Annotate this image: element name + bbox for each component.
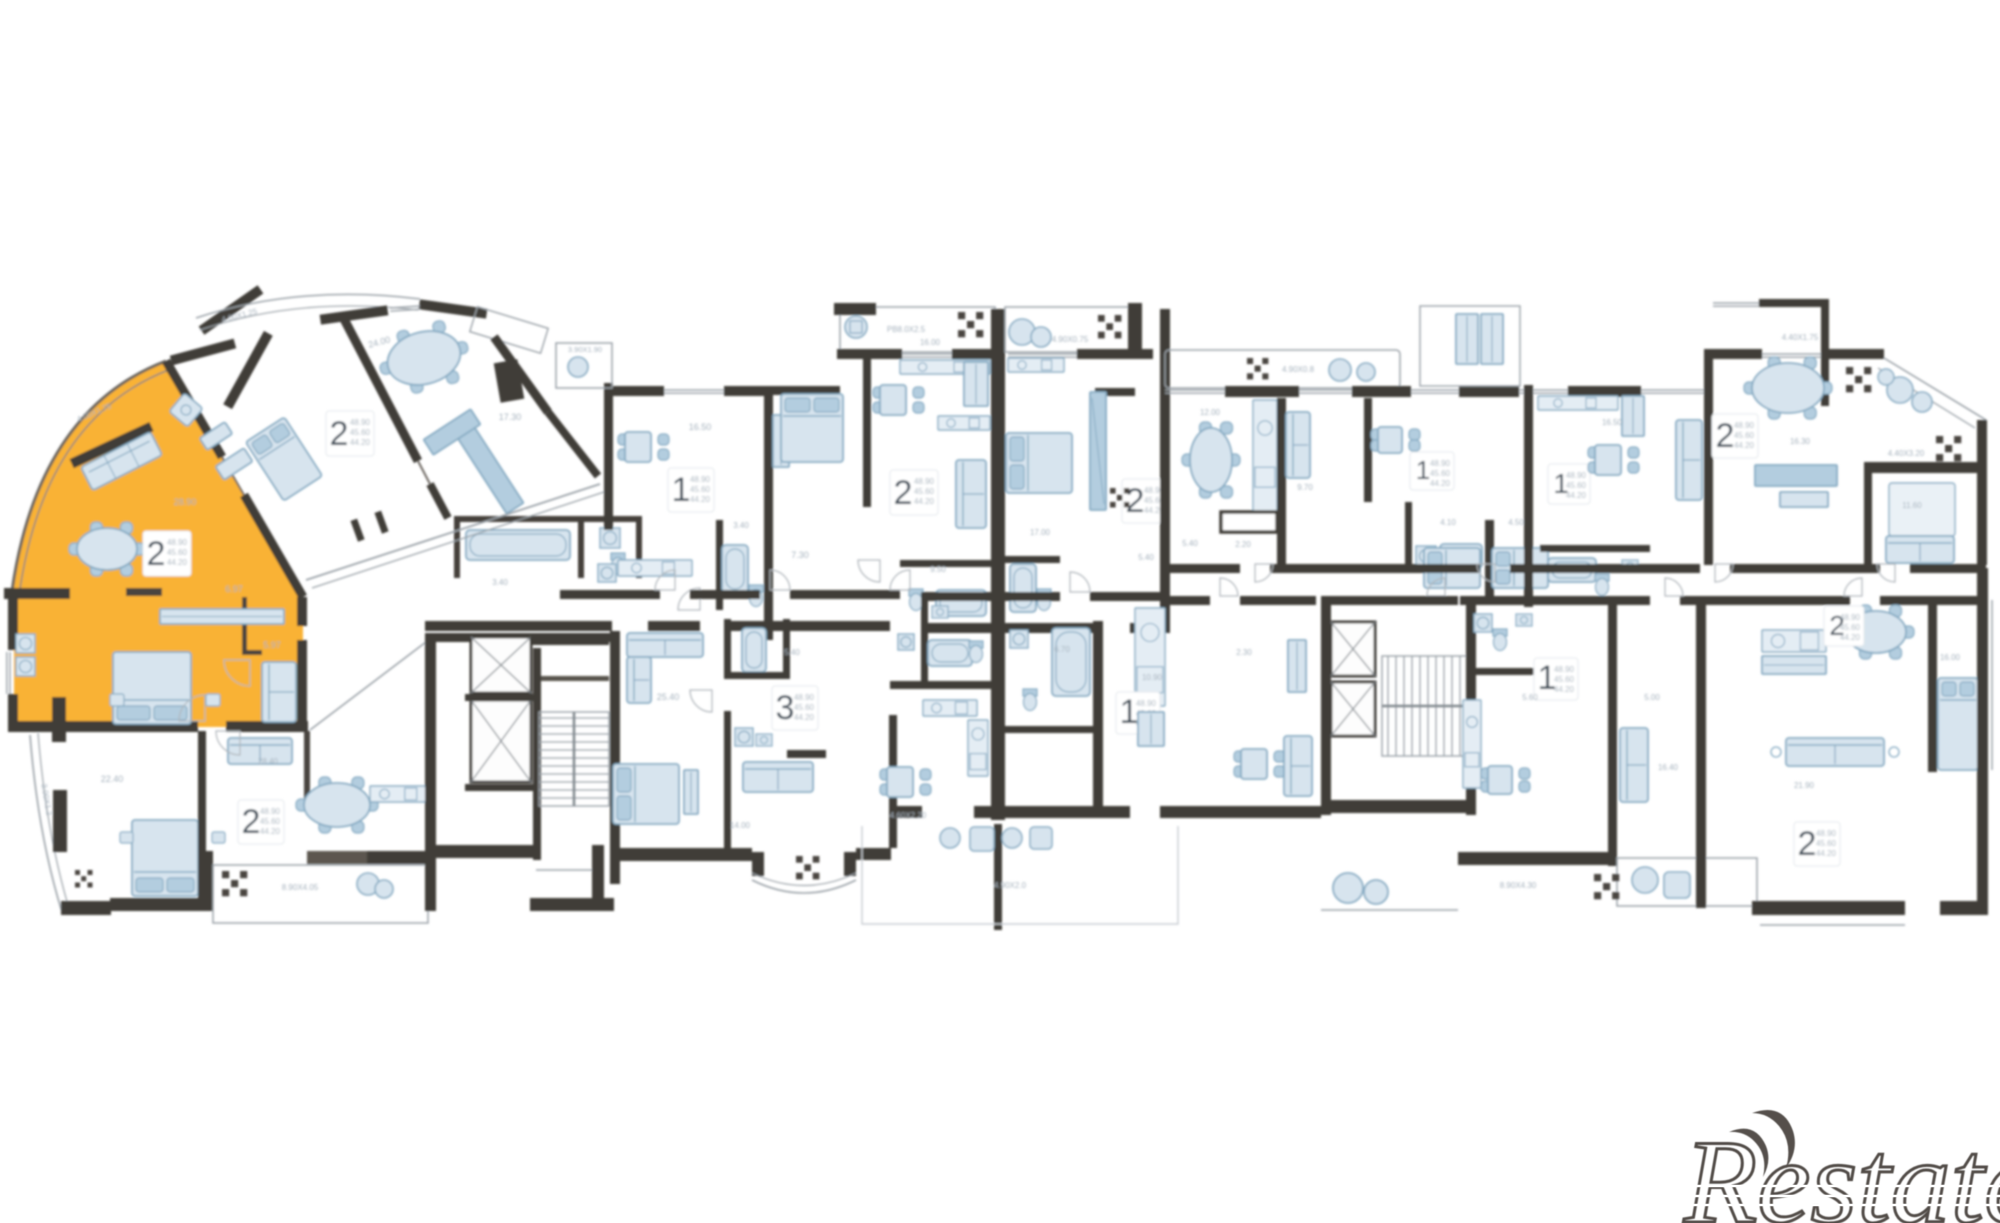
svg-text:21.90: 21.90 [1794, 781, 1815, 790]
svg-text:3.90X1.90: 3.90X1.90 [568, 345, 602, 354]
svg-text:3.40: 3.40 [733, 521, 749, 530]
svg-text:48.90: 48.90 [260, 807, 281, 816]
svg-text:8.90X4.30: 8.90X4.30 [1500, 881, 1537, 890]
svg-text:6.70: 6.70 [1054, 645, 1070, 654]
svg-text:4.10: 4.10 [1440, 518, 1456, 527]
svg-text:44.20: 44.20 [1816, 849, 1837, 858]
svg-text:PB8.0X2.5: PB8.0X2.5 [887, 325, 926, 334]
svg-text:45.60: 45.60 [260, 817, 281, 826]
svg-text:2.20: 2.20 [1235, 540, 1251, 549]
svg-text:16.50: 16.50 [1602, 418, 1623, 427]
svg-text:44.20: 44.20 [350, 438, 371, 447]
svg-text:7.30: 7.30 [791, 550, 809, 560]
svg-text:16.00: 16.00 [920, 338, 941, 347]
svg-text:1: 1 [672, 471, 691, 509]
svg-text:48.90: 48.90 [914, 477, 935, 486]
svg-text:45.60: 45.60 [1554, 675, 1575, 684]
svg-text:45.60: 45.60 [350, 428, 371, 437]
svg-text:4.50: 4.50 [1508, 518, 1524, 527]
svg-text:45.60: 45.60 [794, 703, 815, 712]
svg-text:45.60: 45.60 [1816, 839, 1837, 848]
svg-text:44.20: 44.20 [1566, 491, 1587, 500]
svg-text:5.60: 5.60 [1522, 693, 1538, 702]
svg-text:2.30: 2.30 [1236, 648, 1252, 657]
svg-text:6.97: 6.97 [225, 584, 243, 594]
svg-text:16.50: 16.50 [689, 422, 712, 432]
svg-text:45.60: 45.60 [914, 487, 935, 496]
svg-text:3.40: 3.40 [492, 578, 508, 587]
svg-text:2: 2 [242, 803, 261, 841]
svg-text:48.90: 48.90 [690, 475, 711, 484]
svg-text:45.60: 45.60 [1840, 623, 1861, 632]
svg-text:45.60: 45.60 [690, 485, 711, 494]
svg-text:2: 2 [1716, 417, 1735, 455]
svg-text:1: 1 [1416, 455, 1430, 485]
svg-text:5.97: 5.97 [263, 640, 281, 650]
svg-text:44.20: 44.20 [914, 497, 935, 506]
svg-text:2: 2 [1126, 482, 1145, 520]
svg-text:2: 2 [1798, 825, 1817, 863]
svg-text:44.20: 44.20 [260, 827, 281, 836]
svg-text:48.90: 48.90 [1430, 459, 1451, 468]
svg-text:44.20: 44.20 [1554, 685, 1575, 694]
svg-text:44.20: 44.20 [690, 495, 711, 504]
svg-text:48.90: 48.90 [1554, 665, 1575, 674]
svg-text:48.90: 48.90 [1734, 421, 1755, 430]
svg-text:Restate: Restate [1683, 1115, 2000, 1223]
svg-text:17.00: 17.00 [1030, 528, 1051, 537]
svg-text:4.40X1.75: 4.40X1.75 [1782, 333, 1819, 342]
svg-text:48.90: 48.90 [350, 418, 371, 427]
svg-text:4.90X0.8: 4.90X0.8 [1282, 365, 1315, 374]
svg-text:16.40: 16.40 [1658, 763, 1679, 772]
svg-text:11.60: 11.60 [1902, 501, 1922, 510]
svg-text:28.90: 28.90 [174, 497, 197, 507]
svg-text:4.90X0.75: 4.90X0.75 [1052, 335, 1089, 344]
svg-text:48.90: 48.90 [1840, 613, 1861, 622]
svg-text:4.90X2.0: 4.90X2.0 [994, 881, 1027, 890]
svg-text:4.60X2.20: 4.60X2.20 [890, 811, 927, 820]
svg-text:4.40X3.20: 4.40X3.20 [1888, 449, 1925, 458]
svg-text:16.30: 16.30 [1790, 437, 1811, 446]
svg-text:44.20: 44.20 [167, 558, 188, 567]
svg-text:48.90: 48.90 [167, 538, 188, 547]
svg-text:5.00: 5.00 [1644, 693, 1660, 702]
svg-text:9.50: 9.50 [930, 565, 946, 574]
svg-text:3: 3 [776, 689, 795, 727]
svg-text:44.20: 44.20 [794, 713, 815, 722]
svg-text:12.00: 12.00 [1200, 408, 1221, 417]
svg-text:48.90: 48.90 [1136, 699, 1157, 708]
svg-text:44.20: 44.20 [1430, 479, 1451, 488]
svg-text:48.90: 48.90 [794, 693, 815, 702]
svg-text:10.90: 10.90 [1142, 673, 1163, 682]
svg-text:14.00: 14.00 [730, 821, 751, 830]
svg-text:25.40: 25.40 [657, 692, 680, 702]
svg-text:45.60: 45.60 [1430, 469, 1451, 478]
svg-text:17.30: 17.30 [499, 412, 522, 422]
svg-text:45.60: 45.60 [1734, 431, 1755, 440]
svg-text:5.40: 5.40 [784, 648, 800, 657]
svg-text:9.70: 9.70 [1297, 483, 1313, 492]
svg-text:5.40: 5.40 [1138, 553, 1154, 562]
svg-text:22.40: 22.40 [101, 774, 124, 784]
svg-text:45.60: 45.60 [167, 548, 188, 557]
svg-text:2: 2 [894, 474, 913, 512]
svg-text:45.60: 45.60 [1566, 481, 1587, 490]
svg-text:48.90: 48.90 [1566, 471, 1587, 480]
svg-text:2: 2 [330, 415, 349, 453]
svg-text:48.90: 48.90 [1816, 829, 1837, 838]
svg-text:28.40: 28.40 [258, 757, 279, 766]
svg-text:44.20: 44.20 [1840, 633, 1861, 642]
svg-text:8.90X4.05: 8.90X4.05 [282, 883, 319, 892]
svg-text:16.00: 16.00 [1940, 653, 1961, 662]
svg-text:5.40: 5.40 [1182, 539, 1198, 548]
svg-text:2: 2 [147, 535, 166, 573]
svg-text:44.20: 44.20 [1734, 441, 1755, 450]
